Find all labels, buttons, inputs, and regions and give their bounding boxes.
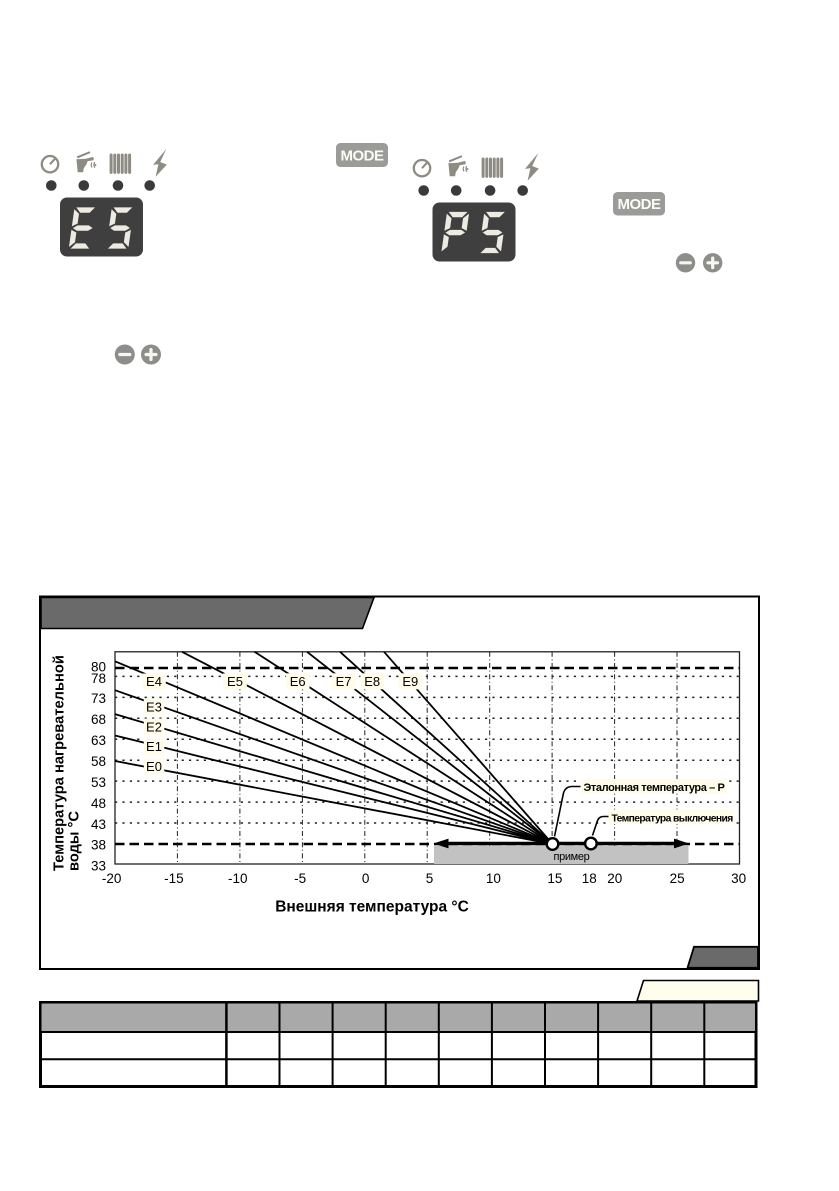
svg-text:E3: E3 [146, 699, 162, 714]
svg-text:38: 38 [91, 838, 106, 853]
svg-text:Температура выключения: Температура выключения [612, 813, 734, 824]
svg-text:E5: E5 [227, 674, 243, 689]
svg-text:33: 33 [91, 859, 106, 874]
svg-text:E2: E2 [146, 719, 162, 734]
svg-text:E6: E6 [290, 674, 306, 689]
svg-text:5: 5 [426, 871, 434, 886]
svg-text:E0: E0 [146, 759, 162, 774]
svg-text:10: 10 [486, 871, 501, 886]
svg-text:30: 30 [731, 871, 746, 886]
svg-text:E8: E8 [364, 674, 380, 689]
svg-text:63: 63 [91, 733, 106, 748]
svg-text:Внешняя температура °C: Внешняя температура °C [275, 899, 469, 916]
svg-text:воды °C: воды °C [67, 811, 83, 871]
svg-text:Эталонная температура – P: Эталонная температура – P [584, 782, 725, 794]
svg-text:MODE: MODE [618, 196, 661, 213]
svg-text:15: 15 [547, 871, 562, 886]
svg-text:E4: E4 [146, 674, 162, 689]
svg-text:18: 18 [582, 871, 597, 886]
svg-text:58: 58 [91, 754, 106, 769]
svg-text:пример: пример [554, 851, 590, 863]
svg-text:E7: E7 [336, 674, 352, 689]
svg-text:43: 43 [91, 817, 106, 832]
svg-text:MODE: MODE [341, 148, 384, 165]
svg-text:-10: -10 [228, 871, 248, 886]
svg-text:78: 78 [91, 671, 106, 686]
svg-text:25: 25 [670, 871, 685, 886]
svg-text:48: 48 [91, 796, 106, 811]
svg-text:73: 73 [91, 691, 106, 706]
svg-text:20: 20 [607, 871, 622, 886]
svg-text:-5: -5 [294, 871, 306, 886]
svg-text:53: 53 [91, 775, 106, 790]
svg-text:E9: E9 [402, 674, 418, 689]
svg-text:0: 0 [362, 871, 370, 886]
svg-text:Температура нагревательной: Температура нагревательной [52, 655, 68, 871]
svg-text:-15: -15 [164, 871, 184, 886]
svg-text:E1: E1 [146, 739, 162, 754]
svg-text:68: 68 [91, 712, 106, 727]
